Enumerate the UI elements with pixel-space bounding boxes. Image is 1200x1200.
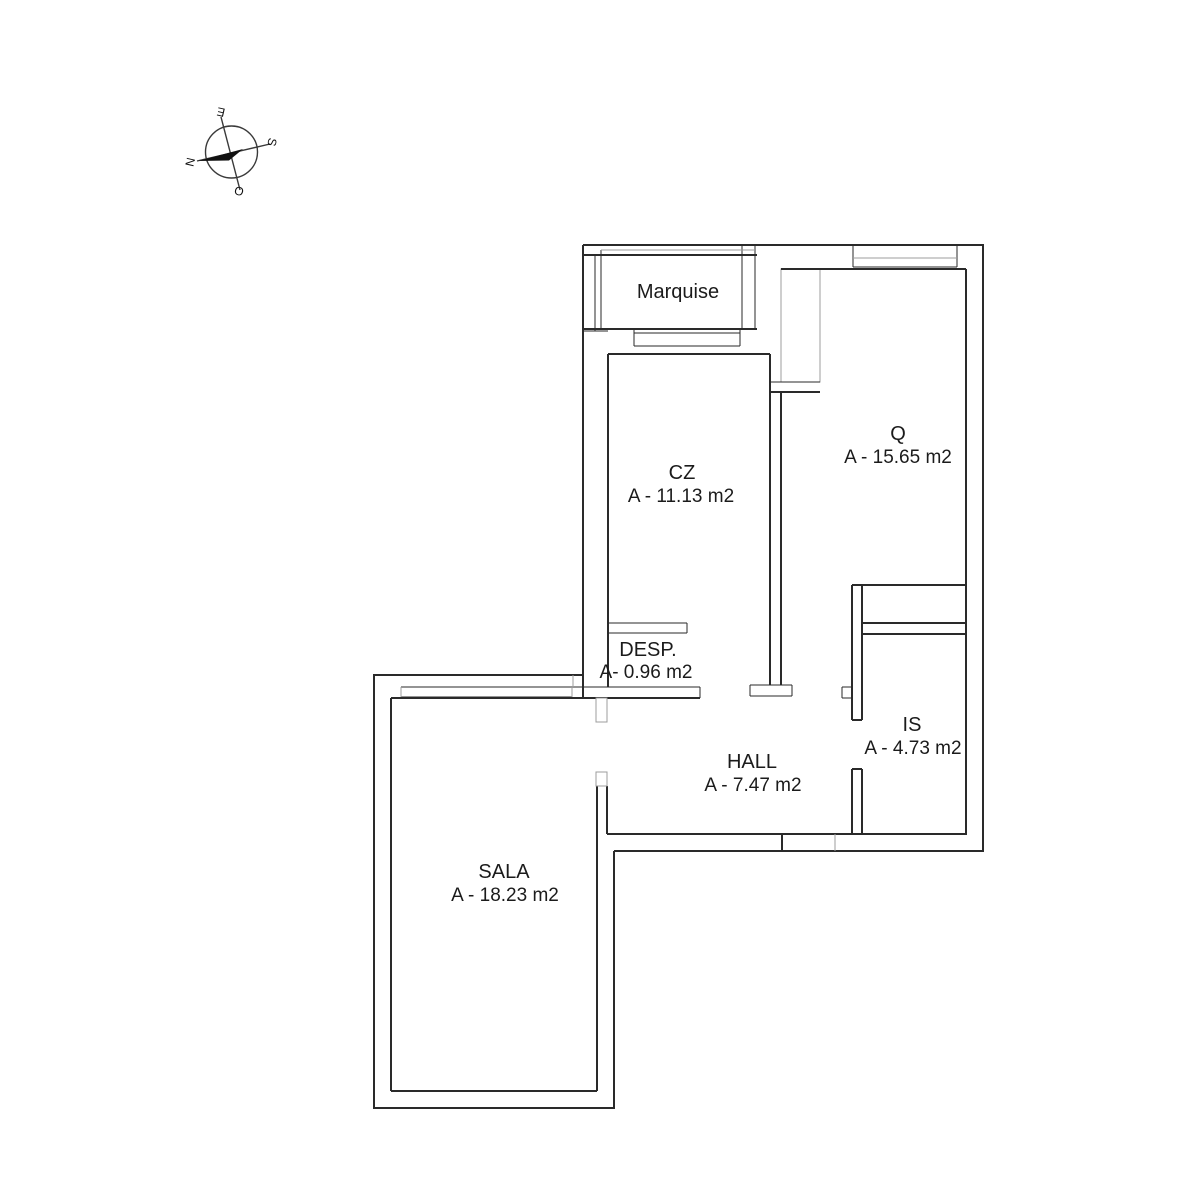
room-area-q: A - 15.65 m2: [844, 447, 952, 468]
room-area-is: A - 4.73 m2: [864, 738, 961, 759]
room-label-q: Q: [890, 423, 906, 445]
room-label-desp: DESP.: [619, 639, 676, 661]
room-desp: DESP. A- 0.96 m2: [391, 639, 700, 698]
room-area-desp: A- 0.96 m2: [600, 662, 693, 683]
floor-plan-canvas: E N S O Marquise CZ A - 11.13 m2: [0, 0, 1200, 1200]
door-jamb-sala-upper: [596, 698, 607, 722]
compass-letter-o: O: [233, 183, 245, 199]
compass-letter-s: S: [264, 137, 279, 148]
wall-cz-corridor: [750, 354, 792, 696]
door-jamb-sala-lower: [596, 772, 607, 786]
room-hall: HALL A - 7.47 m2: [607, 751, 966, 851]
room-area-hall: A - 7.47 m2: [704, 775, 801, 796]
closet-q: [770, 269, 820, 392]
room-area-sala: A - 18.23 m2: [451, 885, 559, 906]
room-area-cz: A - 11.13 m2: [628, 486, 734, 507]
room-label-is: IS: [903, 714, 922, 736]
room-label-cz: CZ: [669, 462, 696, 484]
room-label-hall: HALL: [727, 751, 777, 773]
compass-letter-n: N: [182, 156, 198, 168]
room-cz: CZ A - 11.13 m2: [607, 354, 770, 687]
compass-letter-e: E: [216, 104, 227, 119]
room-label-sala: SALA: [478, 861, 530, 883]
window-below-marquise: [634, 329, 740, 346]
compass-circle: [206, 126, 258, 178]
room-sala: SALA A - 18.23 m2: [391, 675, 607, 1091]
compass-rose: E N S O: [182, 104, 280, 199]
room-marquise: Marquise: [583, 245, 757, 331]
room-label-marquise: Marquise: [637, 281, 719, 303]
